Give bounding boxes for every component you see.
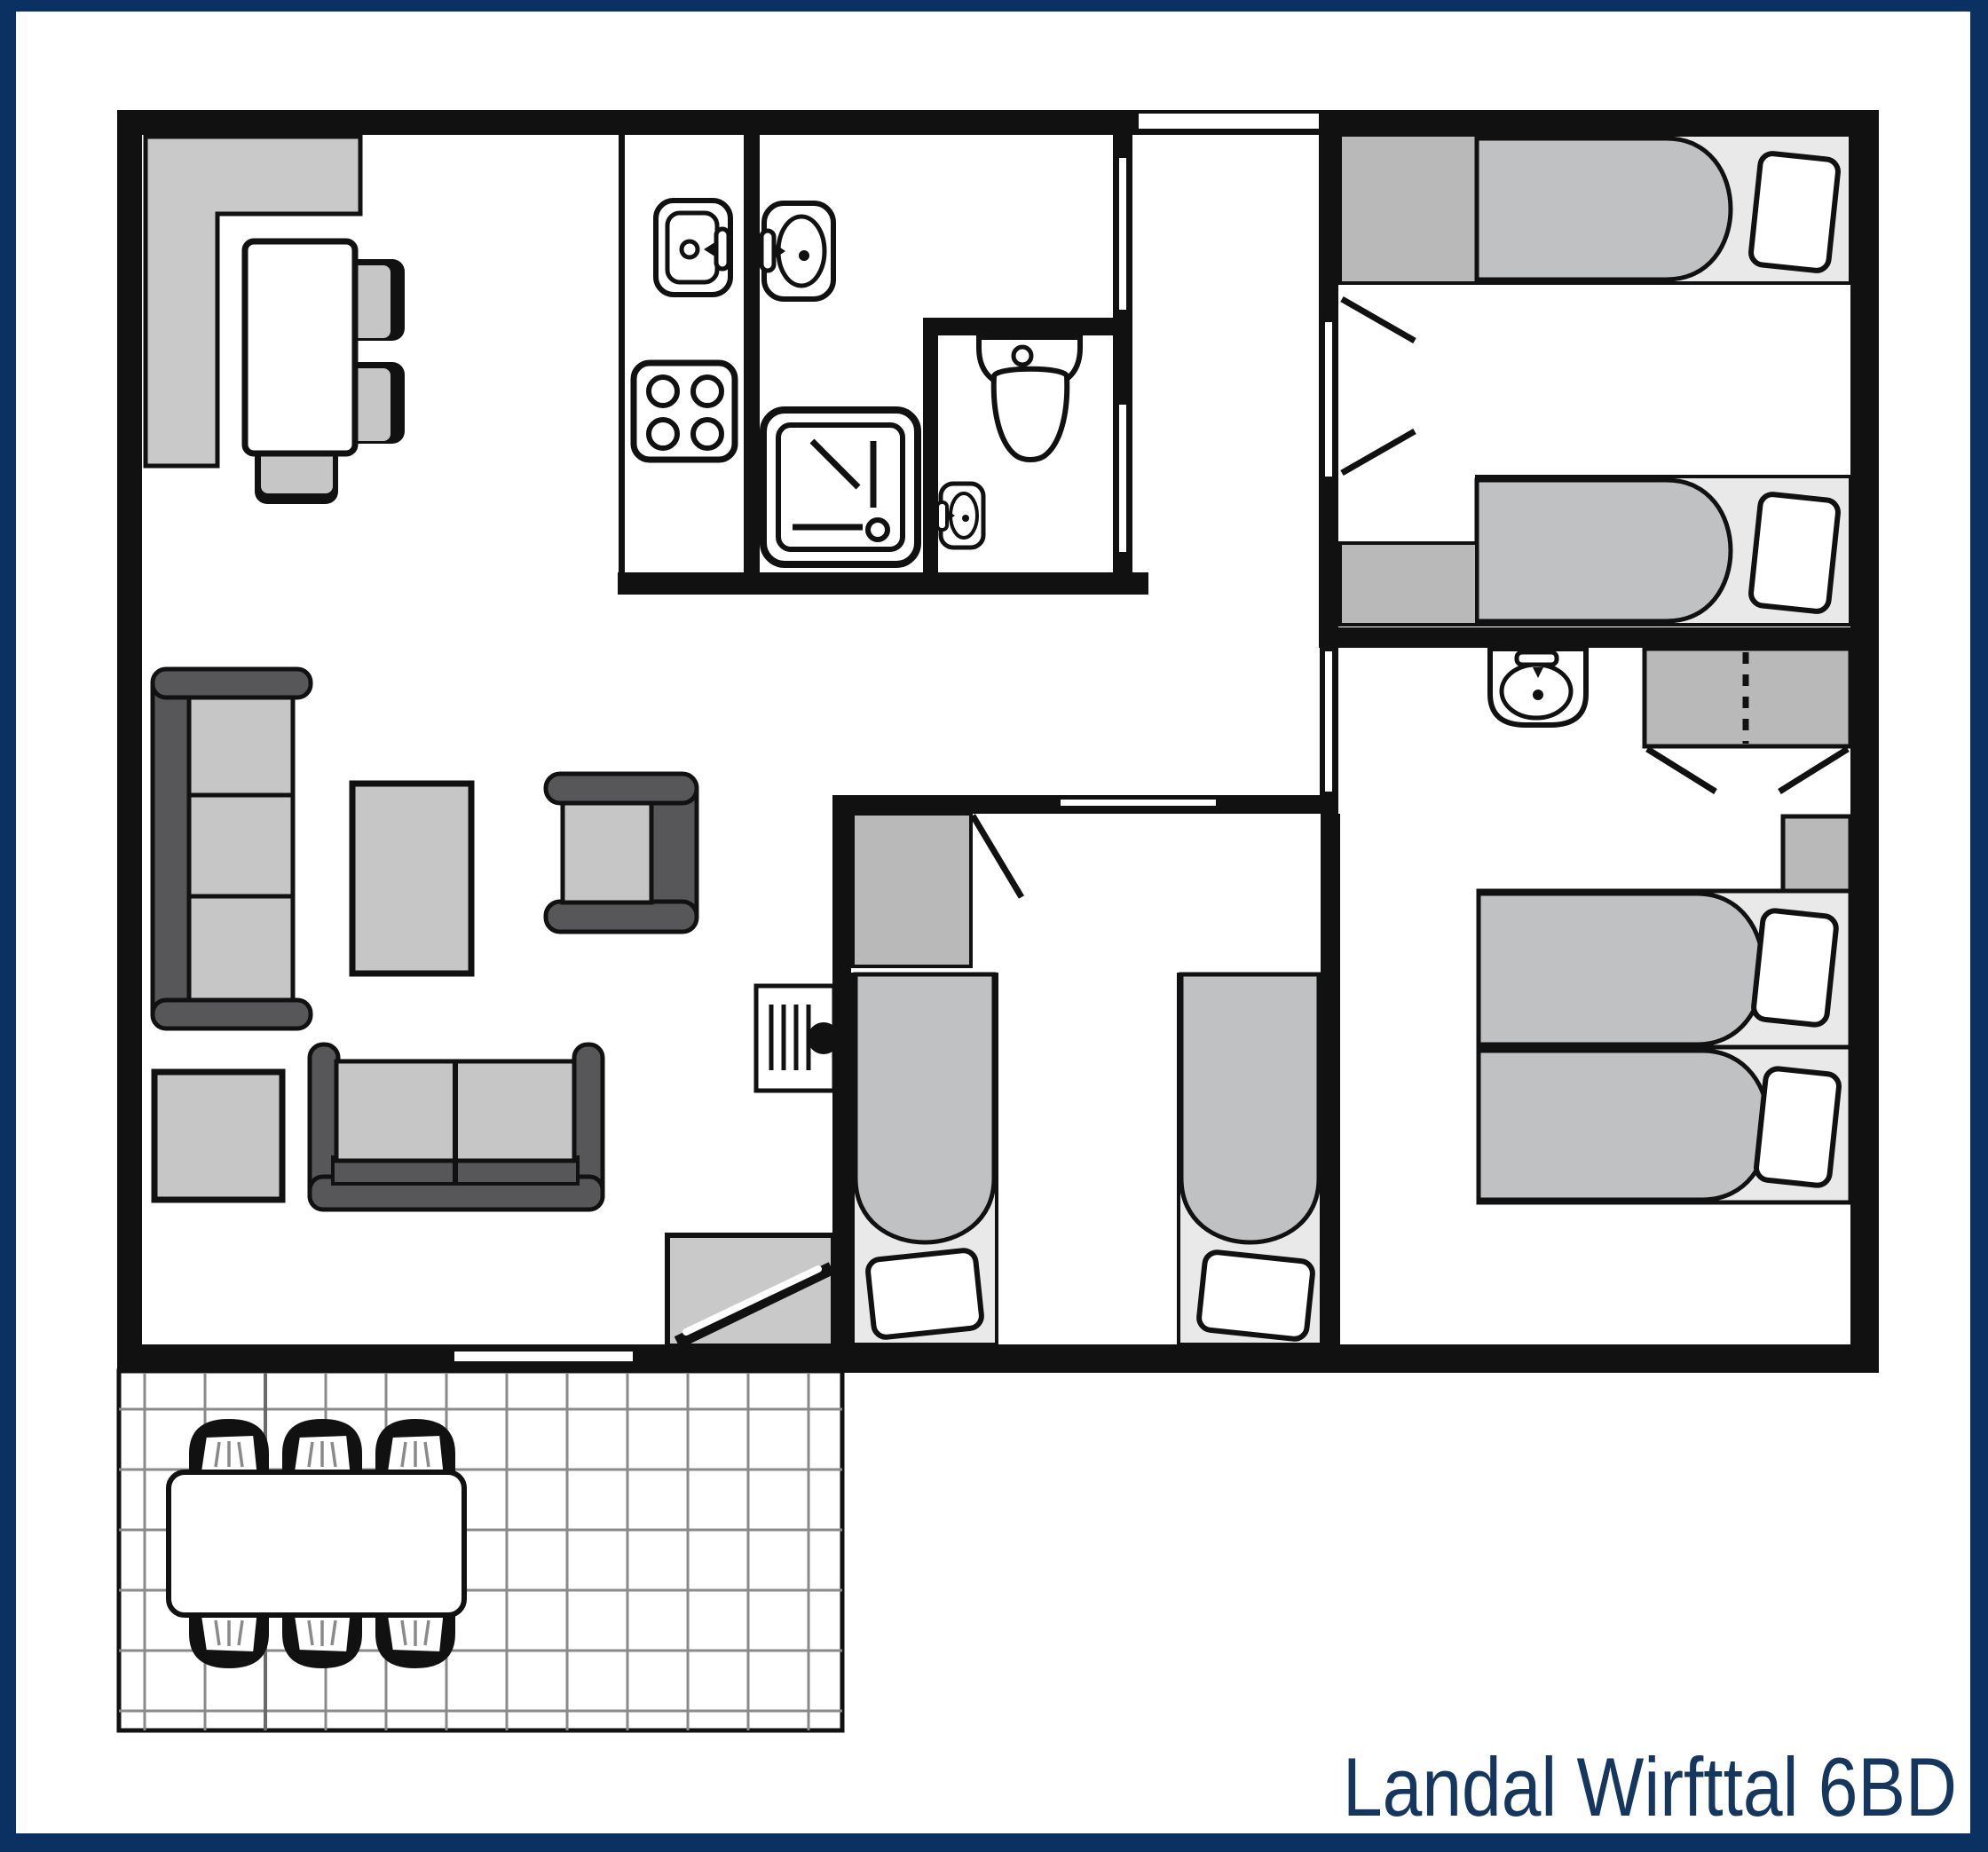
svg-text:Landal Wirfttal 6BD: Landal Wirfttal 6BD xyxy=(1343,1740,1957,1833)
